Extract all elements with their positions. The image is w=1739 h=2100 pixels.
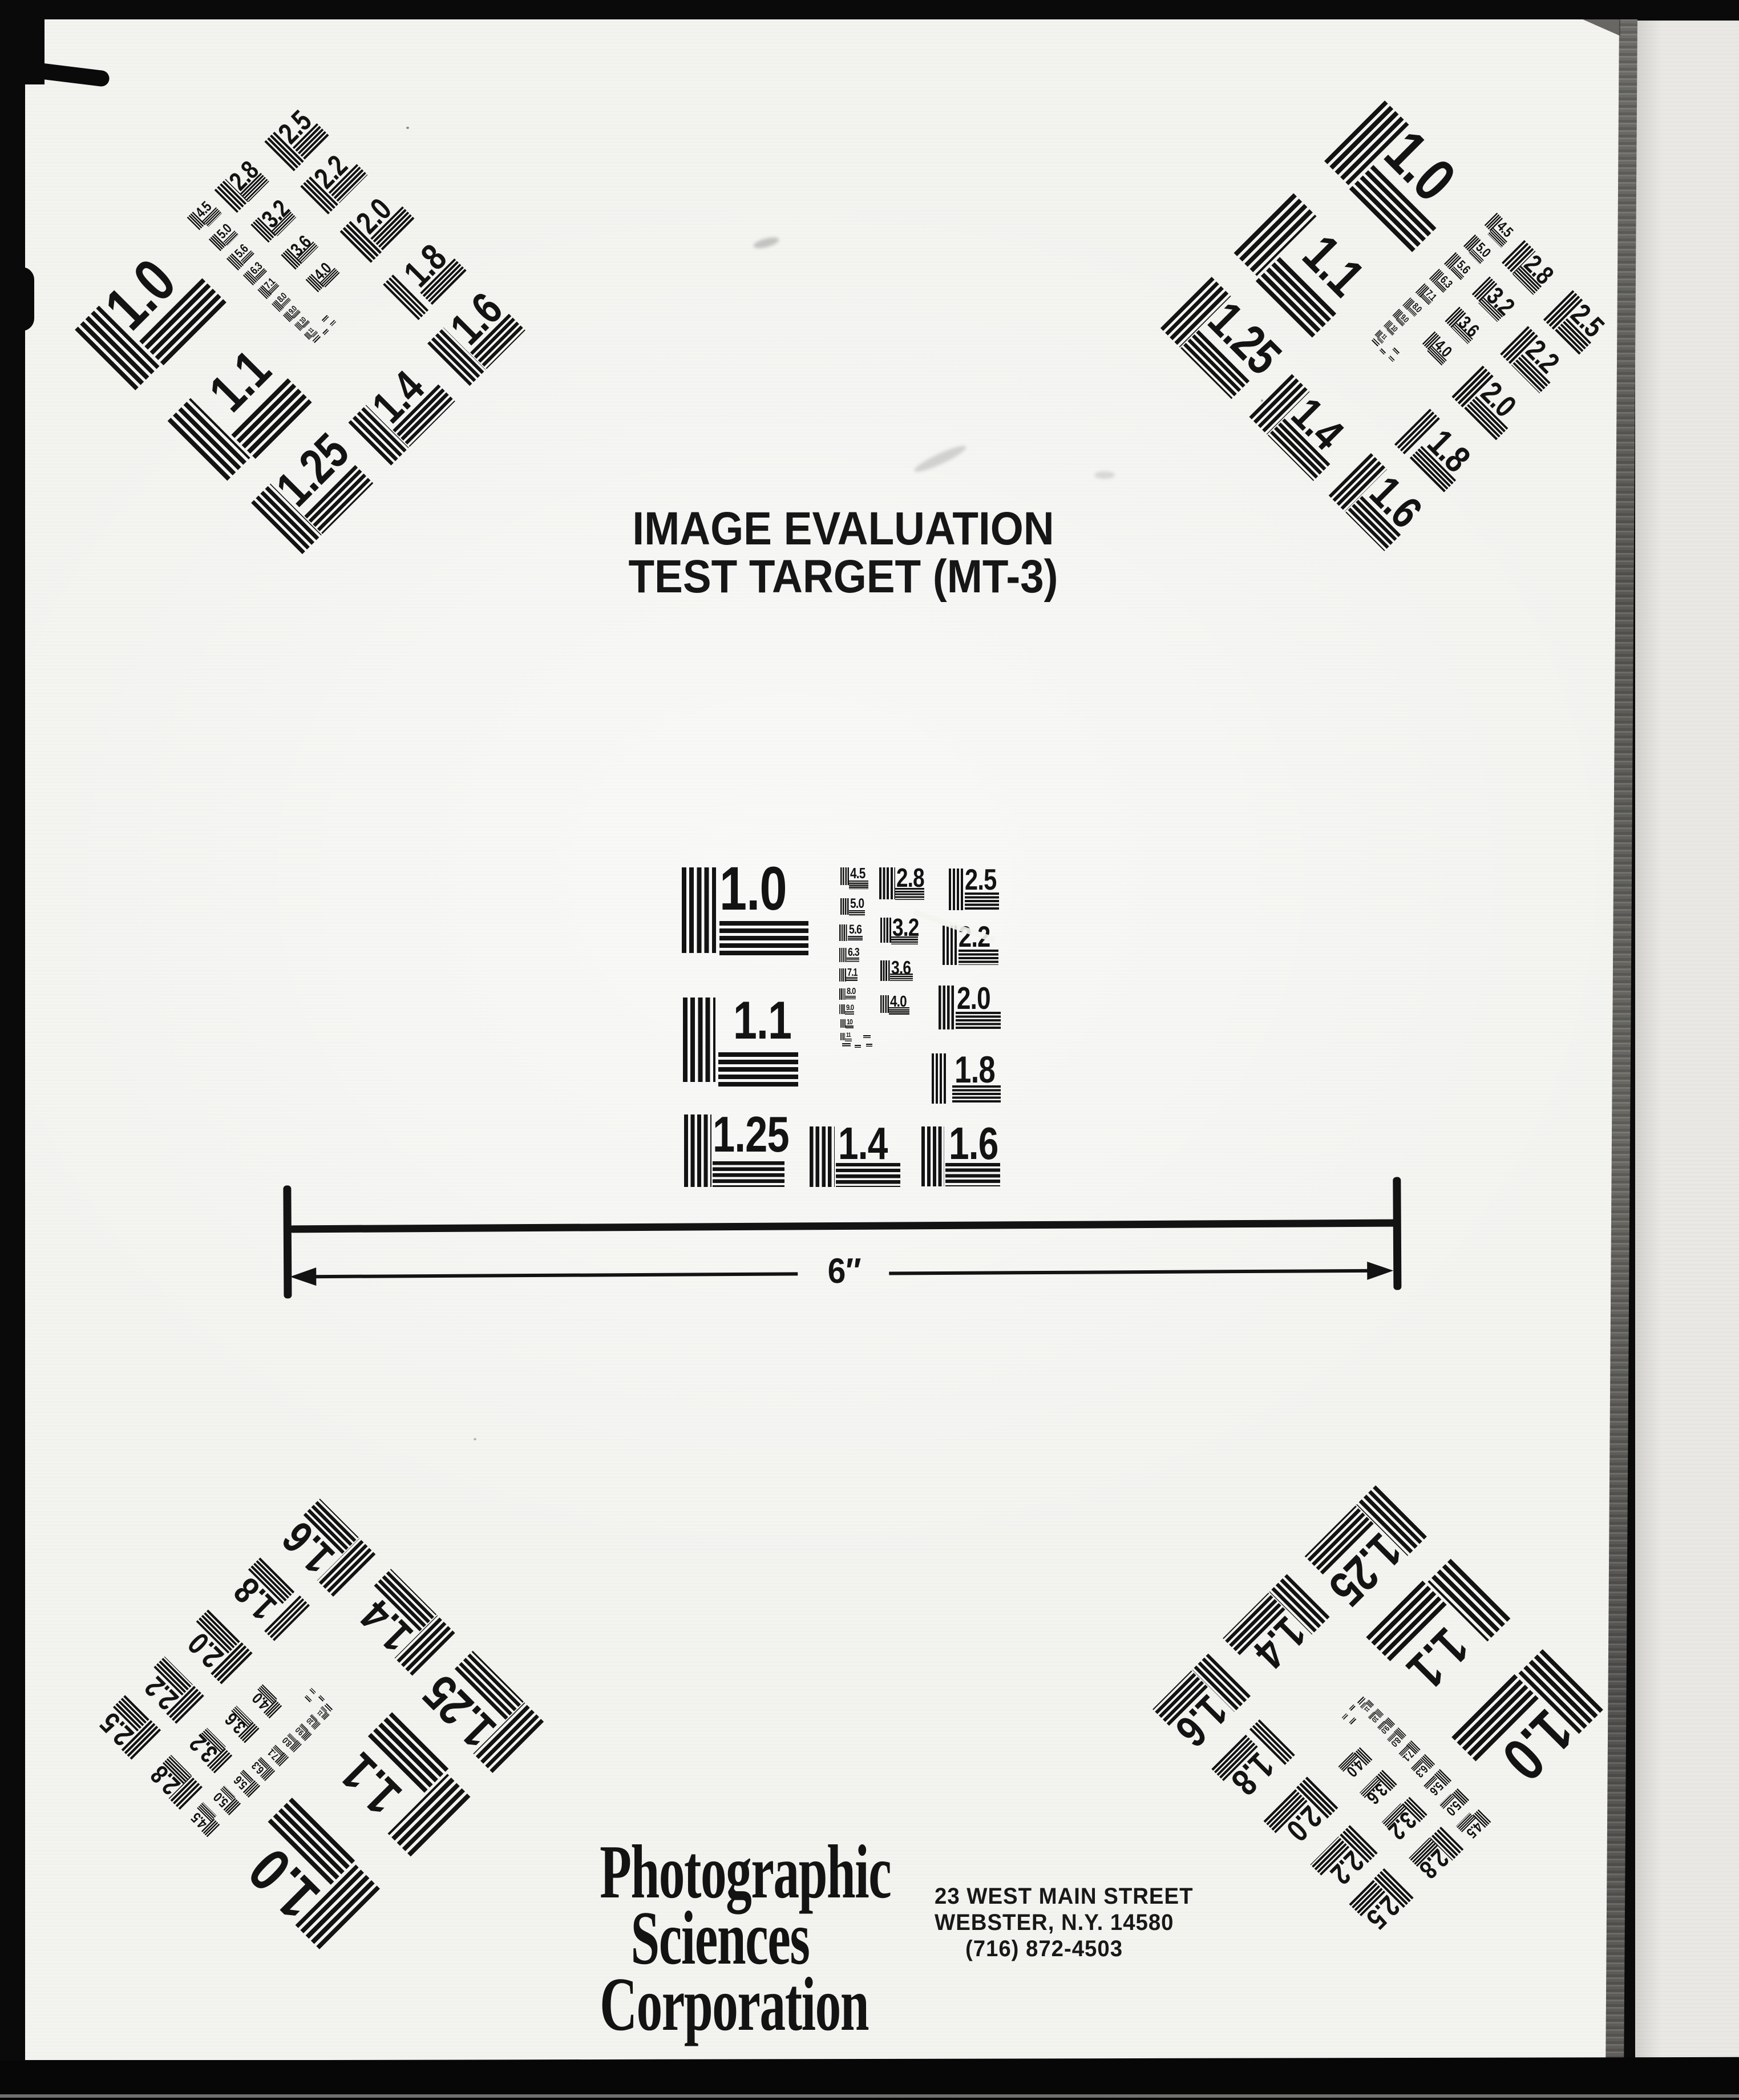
scanned-test-target-page: IMAGE EVALUATION TEST TARGET (MT-3) 1.01…: [0, 0, 1739, 2100]
company-name-block: Photographic Sciences Corporation: [543, 1839, 897, 2037]
scan-smudge: [1094, 471, 1115, 479]
ruler-arrowhead-right-icon: [1367, 1262, 1393, 1280]
address-line: (716) 872-4503: [935, 1936, 1154, 1962]
ruler-arrow-line-left: [309, 1272, 798, 1278]
address-line: WEBSTER, N.Y. 14580: [935, 1909, 1154, 1936]
ruler-end-cap-right: [1393, 1177, 1401, 1290]
company-address-block: 23 WEST MAIN STREET WEBSTER, N.Y. 14580 …: [930, 1883, 1158, 1962]
ruler-arrowhead-left-icon: [290, 1267, 316, 1286]
dust-speck: [474, 1438, 476, 1440]
dust-speck: [406, 127, 409, 129]
ruler-arrow-line-right: [889, 1269, 1377, 1275]
company-name-line: Sciences: [600, 1905, 840, 1971]
company-name-line: Photographic: [600, 1839, 840, 1905]
company-name-line: Corporation: [600, 1971, 840, 2037]
scale-ruler: 6″: [0, 0, 1739, 2100]
ruler-bar-line: [290, 1219, 1397, 1233]
ruler-length-label: 6″: [802, 1251, 887, 1292]
address-line: 23 WEST MAIN STREET: [935, 1883, 1154, 1909]
dust-speck: [1261, 399, 1263, 402]
